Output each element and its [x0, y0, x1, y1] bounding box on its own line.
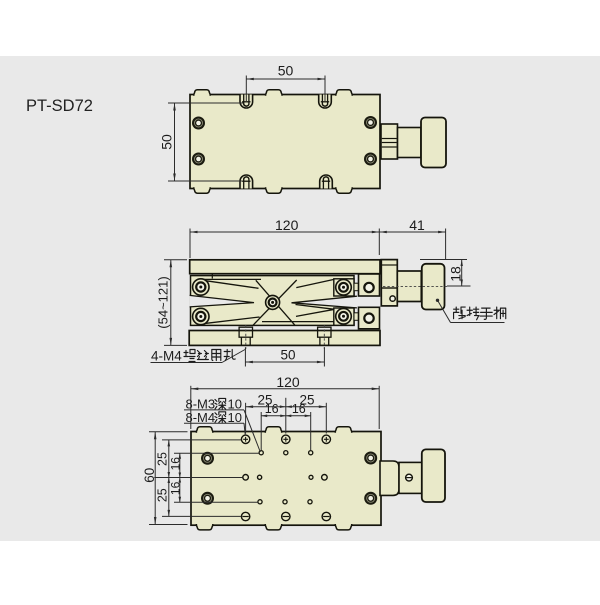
svg-text:120: 120: [276, 374, 300, 390]
svg-text:8-M4: 8-M4: [186, 410, 216, 425]
svg-text:PT-SD72: PT-SD72: [26, 97, 93, 115]
svg-text:16: 16: [265, 402, 279, 416]
svg-text:120: 120: [275, 217, 299, 233]
svg-text:(54~121): (54~121): [155, 276, 170, 328]
svg-text:50: 50: [280, 347, 295, 362]
svg-text:4-M4: 4-M4: [151, 349, 182, 364]
svg-text:50: 50: [159, 134, 175, 150]
svg-text:16: 16: [292, 402, 306, 416]
svg-text:50: 50: [278, 63, 294, 79]
svg-text:16: 16: [169, 457, 183, 471]
svg-text:18: 18: [447, 266, 463, 282]
svg-text:10: 10: [228, 410, 242, 425]
svg-text:16: 16: [169, 481, 183, 495]
svg-text:60: 60: [142, 468, 157, 483]
svg-text:41: 41: [409, 217, 425, 233]
svg-text:25: 25: [155, 488, 169, 502]
svg-text:25: 25: [155, 452, 169, 466]
